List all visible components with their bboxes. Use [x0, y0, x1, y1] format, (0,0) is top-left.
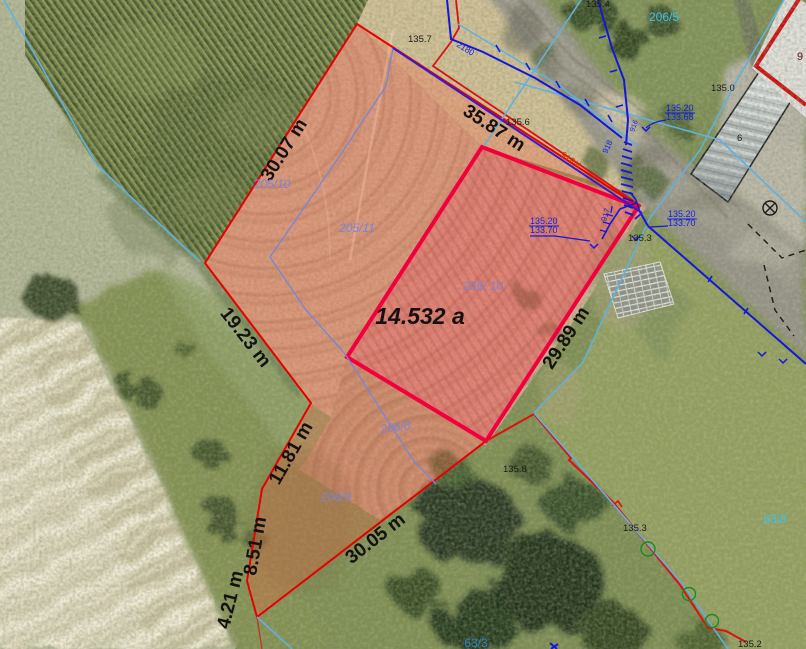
svg-text:135.3: 135.3	[628, 233, 652, 244]
svg-text:135.8: 135.8	[503, 464, 527, 475]
svg-text:135.7: 135.7	[408, 34, 432, 45]
svg-text:135.6: 135.6	[506, 117, 530, 128]
svg-text:135.3: 135.3	[623, 523, 647, 534]
svg-text:205/10: 205/10	[253, 177, 291, 191]
svg-text:205/11: 205/11	[338, 221, 375, 235]
svg-text:135.2: 135.2	[738, 639, 762, 649]
svg-text:133.70: 133.70	[530, 225, 558, 235]
svg-text:206/5: 206/5	[649, 10, 679, 24]
svg-text:133.68: 133.68	[666, 112, 694, 122]
svg-text:135.4: 135.4	[586, 0, 610, 10]
svg-text:135.0: 135.0	[711, 83, 735, 94]
svg-text:206/ 10: 206/ 10	[462, 279, 503, 293]
svg-text:63/8: 63/8	[763, 512, 787, 526]
svg-text:133.70: 133.70	[668, 218, 696, 228]
svg-text:63/3: 63/3	[464, 636, 488, 649]
svg-text:206/9: 206/9	[320, 490, 351, 504]
svg-text:9: 9	[797, 51, 803, 63]
svg-text:6: 6	[737, 133, 742, 144]
svg-text:14.532 a: 14.532 a	[375, 303, 465, 329]
